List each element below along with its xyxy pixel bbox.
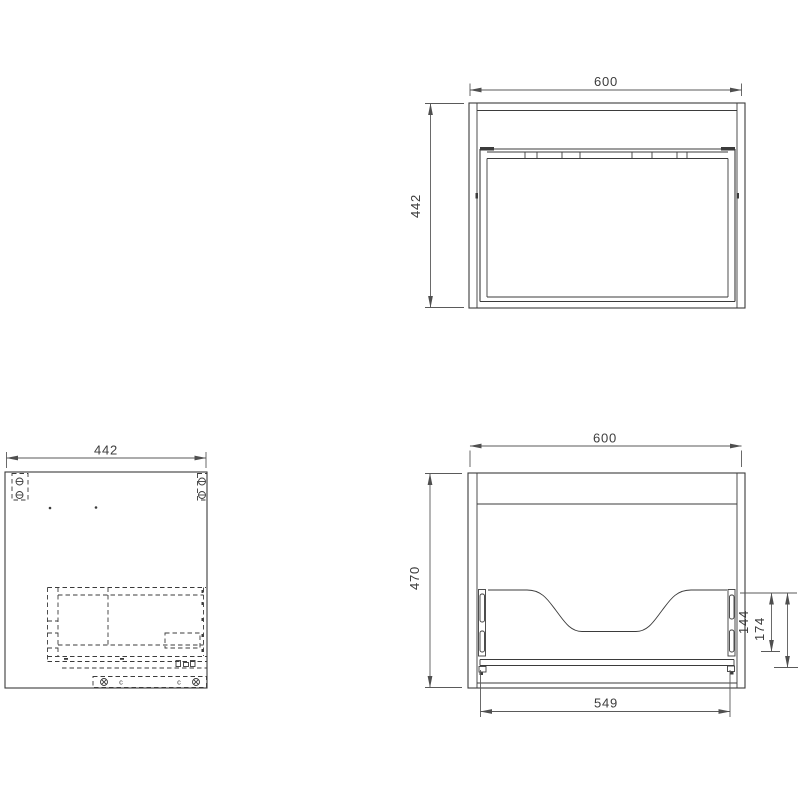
back-height-dimension-label: 470 bbox=[407, 566, 422, 590]
hidden-fitting-box bbox=[165, 633, 200, 648]
front-width-dimension-label: 600 bbox=[594, 74, 618, 89]
side-depth-dimension-label: 442 bbox=[94, 443, 118, 458]
slide-offset-dimension: 174 bbox=[752, 593, 798, 668]
front-view: 600 442 bbox=[408, 74, 745, 308]
pilot-hole-dot bbox=[95, 506, 98, 509]
clip-symbol-right: c bbox=[177, 678, 181, 687]
screw-symbol-right bbox=[193, 679, 200, 686]
side-view: 442 bbox=[5, 443, 207, 689]
hanging-bracket-right bbox=[198, 474, 208, 501]
screw-symbol-left bbox=[101, 679, 108, 686]
wall-notch-right bbox=[737, 193, 740, 199]
hanging-bracket-left bbox=[12, 474, 28, 501]
bottom-span-dimension: 549 bbox=[481, 670, 731, 717]
front-cabinet-outline bbox=[469, 103, 745, 308]
back-cabinet-outline bbox=[468, 473, 745, 688]
technical-drawing-canvas: 600 442 442 bbox=[0, 0, 800, 800]
bottom-fitting-strip: c c bbox=[93, 677, 207, 688]
slide-fitting-marks bbox=[64, 658, 195, 667]
slide-offset-dimension-label: 174 bbox=[752, 617, 767, 641]
drawer-back-cutout bbox=[488, 590, 727, 632]
side-depth-dimension: 442 bbox=[7, 443, 207, 469]
bottom-span-dimension-label: 549 bbox=[594, 696, 618, 711]
front-height-dimension: 442 bbox=[408, 104, 464, 308]
front-width-dimension: 600 bbox=[470, 74, 742, 96]
side-cabinet-outline bbox=[5, 472, 207, 688]
pilot-hole-dot bbox=[49, 507, 52, 510]
front-height-dimension-label: 442 bbox=[408, 194, 423, 218]
hidden-drawer-outline bbox=[48, 588, 208, 669]
back-view: 600 470 144 174 549 bbox=[407, 431, 798, 718]
back-height-dimension: 470 bbox=[407, 474, 462, 688]
bottom-stretcher-bar bbox=[480, 660, 734, 666]
back-width-dimension-label: 600 bbox=[593, 431, 617, 446]
back-width-dimension: 600 bbox=[470, 431, 742, 468]
slide-length-dimension-label: 144 bbox=[736, 610, 751, 634]
drawer-corner-mark-left bbox=[480, 147, 494, 151]
front-drawer-box bbox=[476, 147, 740, 302]
clip-symbol-left: c bbox=[119, 678, 123, 687]
drawer-corner-mark-right bbox=[721, 147, 735, 151]
drawer-rail-dividers bbox=[525, 152, 687, 159]
wall-notch-left bbox=[476, 193, 479, 199]
